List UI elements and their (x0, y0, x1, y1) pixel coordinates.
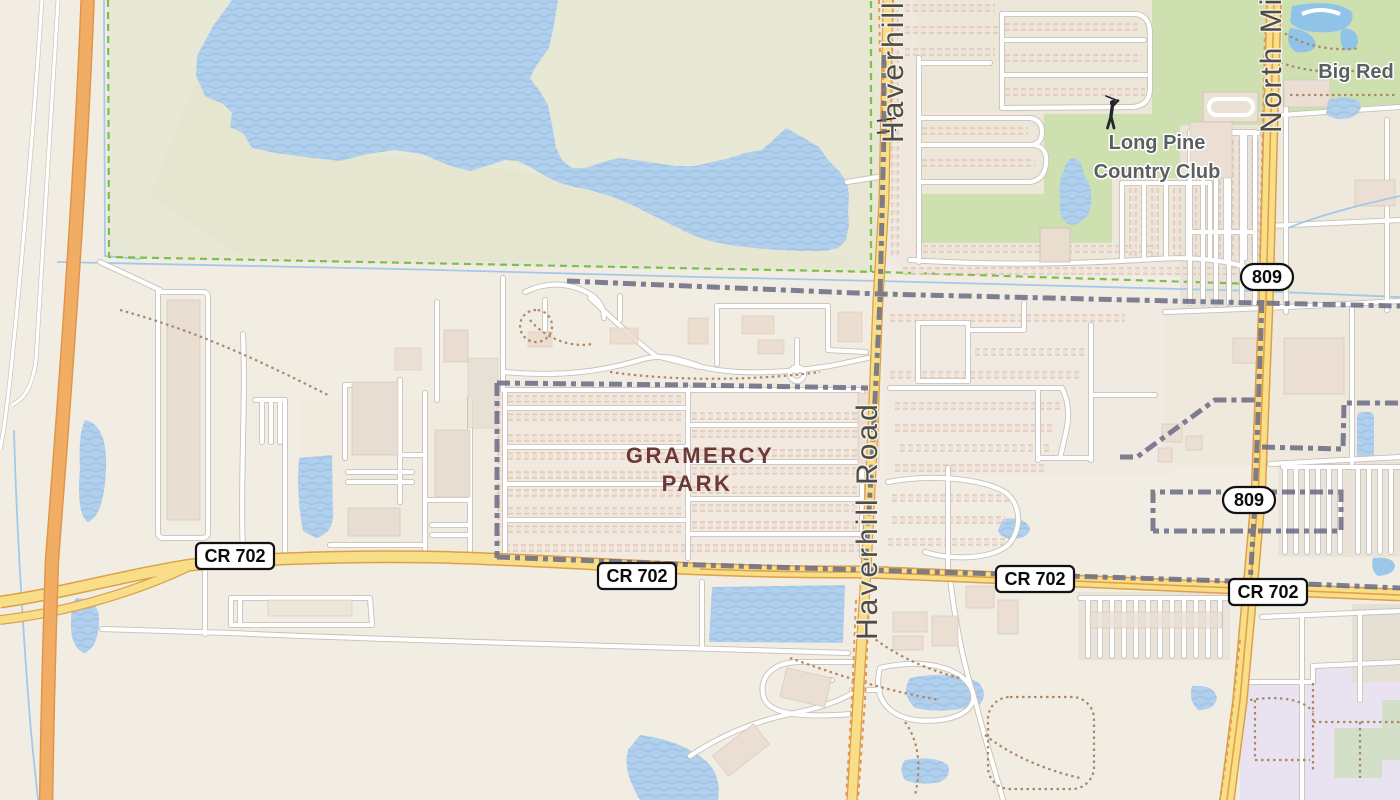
svg-text:809: 809 (1252, 267, 1282, 287)
svg-text:CR 702: CR 702 (1237, 582, 1298, 602)
svg-text:Haverhill Road: Haverhill Road (851, 401, 884, 640)
svg-text:North Military Trail: North Military Trail (1255, 0, 1288, 133)
svg-text:PARK: PARK (662, 471, 733, 496)
svg-text:CR 702: CR 702 (204, 546, 265, 566)
svg-text:GRAMERCY: GRAMERCY (626, 443, 774, 468)
svg-text:Country Club: Country Club (1094, 161, 1221, 183)
svg-text:809: 809 (1234, 490, 1264, 510)
svg-text:CR 702: CR 702 (606, 566, 667, 586)
svg-text:CR 702: CR 702 (1004, 569, 1065, 589)
svg-text:Haverhill Road: Haverhill Road (877, 0, 910, 143)
svg-text:Long Pine: Long Pine (1109, 132, 1206, 154)
svg-text:Big Red: Big Red (1318, 61, 1394, 83)
